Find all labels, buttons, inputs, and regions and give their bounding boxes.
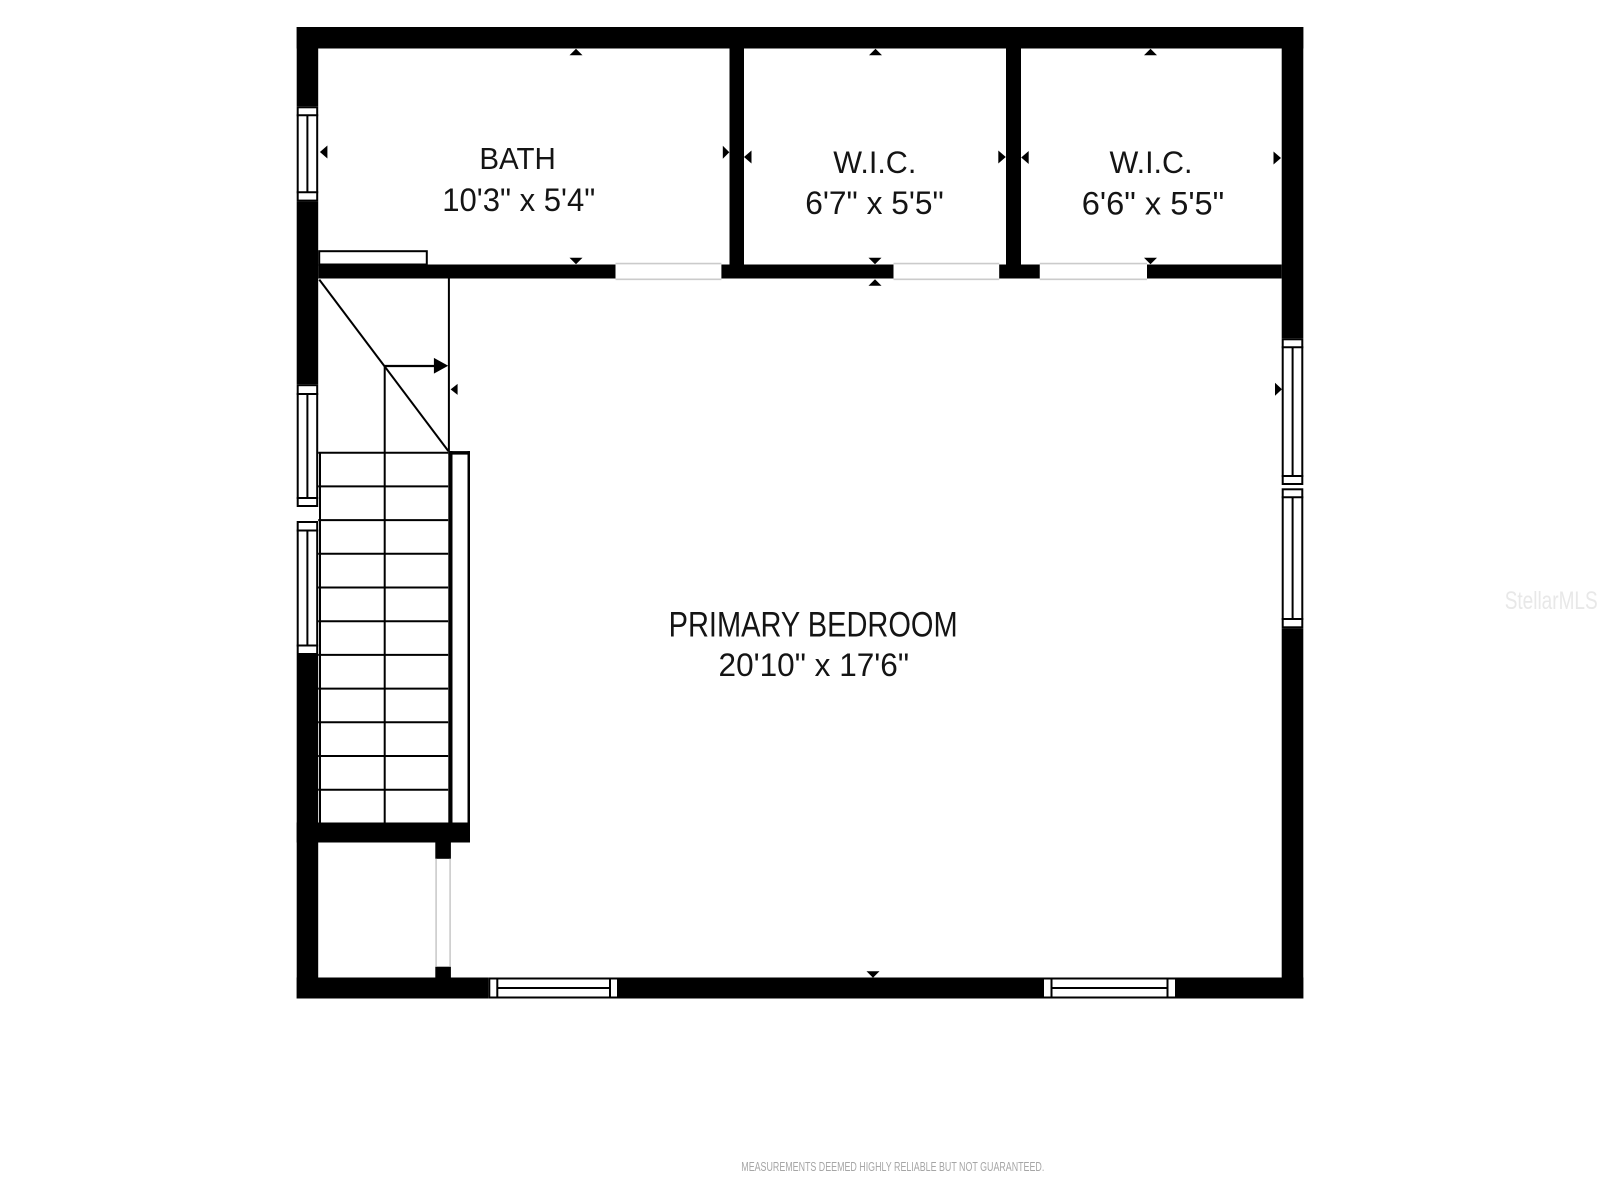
svg-text:W.I.C.: W.I.C. [1110,144,1193,180]
svg-text:BATH: BATH [479,141,556,176]
svg-text:MEASUREMENTS DEEMED HIGHLY REL: MEASUREMENTS DEEMED HIGHLY RELIABLE BUT … [741,1159,1044,1174]
svg-text:W.I.C.: W.I.C. [833,144,916,180]
svg-text:6'6" x 5'5": 6'6" x 5'5" [1082,185,1225,221]
svg-text:6'7" x 5'5": 6'7" x 5'5" [805,185,944,221]
svg-text:StellarMLS: StellarMLS [1505,588,1598,615]
svg-text:20'10" x 17'6": 20'10" x 17'6" [719,647,910,683]
svg-text:PRIMARY BEDROOM: PRIMARY BEDROOM [669,604,958,644]
svg-text:10'3" x 5'4": 10'3" x 5'4" [442,182,595,218]
